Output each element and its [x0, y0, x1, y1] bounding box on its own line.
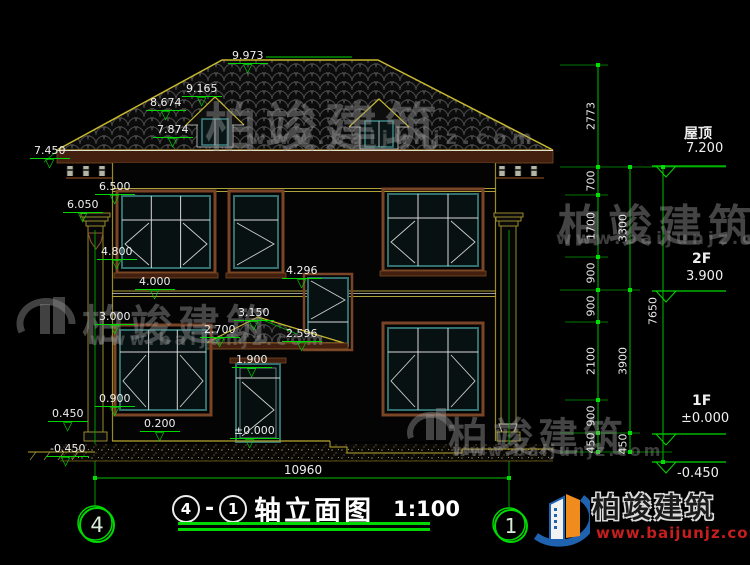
elevation-marker: -0.450▽ — [46, 437, 89, 466]
window-2f-middle — [226, 191, 286, 278]
dim-label: 3900 — [617, 347, 630, 375]
watermark-url: www.baijunjz.com — [248, 127, 538, 149]
elevation-marker: 3.000▽ — [95, 305, 135, 334]
overall-width-dim: 10960 — [268, 463, 338, 477]
datum-triangle-icon: ▽ — [197, 97, 222, 106]
datum-triangle-icon: ▽ — [63, 422, 88, 431]
dim-label: 900 — [585, 263, 598, 284]
dim-label: 450 — [617, 434, 630, 455]
datum-triangle-icon: ▽ — [78, 213, 103, 222]
elevation-marker: 0.900▽ — [95, 387, 135, 416]
elevation-marker: 2.596▽ — [282, 322, 322, 351]
level-label-roof: 屋顶 — [684, 123, 712, 143]
datum-triangle-icon: ▽ — [297, 279, 322, 288]
datum-triangle-icon: ▽ — [247, 368, 272, 377]
datum-triangle-icon: ▽ — [168, 138, 193, 147]
elevation-marker: 9.165▽ — [182, 77, 222, 106]
datum-triangle-icon: ▽ — [112, 260, 137, 269]
elevation-marker: 4.296▽ — [282, 259, 322, 288]
datum-triangle-icon: ▽ — [155, 432, 180, 441]
dim-label: 2773 — [585, 102, 598, 130]
elevation-marker: 7.874▽ — [153, 118, 193, 147]
datum-triangle-icon: ▽ — [245, 439, 279, 448]
level-value-roof: 7.200 — [686, 141, 723, 156]
elevation-marker: 1.900▽ — [232, 348, 272, 377]
dim-label: 900 — [585, 296, 598, 317]
brand-logo-text: 柏竣建筑 — [592, 486, 716, 526]
window-2f-right — [380, 189, 486, 276]
dim-label: 2100 — [585, 347, 598, 375]
brand-logo-url: www.baijunjz.com — [596, 524, 750, 542]
datum-triangle-icon: ▽ — [215, 338, 240, 347]
elevation-marker: 6.050▽ — [63, 193, 103, 222]
watermark-brand: 柏竣建筑 — [205, 86, 445, 161]
axis-bubble-1: 1 — [494, 509, 528, 543]
dim-label: 900 — [585, 406, 598, 427]
datum-triangle-icon: ▽ — [61, 457, 89, 466]
datum-triangle-icon: ▽ — [150, 290, 175, 299]
elevation-marker: 4.800▽ — [97, 240, 137, 269]
elevation-marker: 0.450▽ — [48, 402, 88, 431]
level-value-ground: -0.450 — [677, 466, 719, 481]
datum-triangle-icon: ▽ — [110, 325, 135, 334]
level-value-1f: ±0.000 — [681, 411, 729, 426]
datum-triangle-icon: ▽ — [45, 159, 70, 168]
elevation-marker: 0.200▽ — [140, 412, 180, 441]
title-bubble-4: 4 — [172, 495, 200, 523]
dim-label: 7650 — [647, 297, 660, 325]
elevation-marker: ±0.000▽ — [230, 419, 279, 448]
datum-triangle-icon: ▽ — [297, 342, 322, 351]
level-label-1f: 1F — [692, 393, 711, 409]
elevation-marker: 7.450▽ — [30, 139, 70, 168]
cad-elevation-canvas: 柏竣建筑 www.baijunjz.com 柏竣建筑 www.baijunjz.… — [0, 0, 750, 565]
datum-triangle-icon: ▽ — [110, 407, 135, 416]
title-bubble-1: 1 — [219, 495, 247, 523]
elevation-drawing — [0, 0, 750, 565]
dim-label: 1700 — [585, 212, 598, 240]
title-dash: - — [205, 496, 214, 521]
brand-logo-icon — [528, 484, 590, 554]
watermark-url: www.baijunjz.com — [452, 441, 663, 460]
level-label-2f: 2F — [692, 251, 711, 267]
elevation-marker: 3.150▽ — [234, 301, 274, 330]
dim-label: 700 — [585, 171, 598, 192]
datum-triangle-icon: ▽ — [243, 64, 268, 73]
brand-logo: 柏竣建筑 www.baijunjz.com — [528, 482, 748, 562]
datum-triangle-icon: ▽ — [249, 321, 274, 330]
elevation-marker: 8.674▽ — [146, 91, 186, 120]
elevation-marker: 9.973▽ — [228, 44, 268, 73]
axis-bubble-4: 4 — [79, 507, 115, 543]
title-underline — [178, 528, 430, 531]
elevation-marker: 2.700▽ — [200, 318, 240, 347]
dim-label: 3300 — [617, 214, 630, 242]
title-scale: 1:100 — [393, 497, 460, 521]
level-value-2f: 3.900 — [686, 269, 723, 284]
watermark-logo-icon — [10, 284, 82, 356]
elevation-marker: 4.000▽ — [135, 270, 175, 299]
title-underline — [178, 522, 430, 525]
datum-triangle-icon: ▽ — [110, 195, 135, 204]
dim-label: 450 — [585, 433, 598, 454]
